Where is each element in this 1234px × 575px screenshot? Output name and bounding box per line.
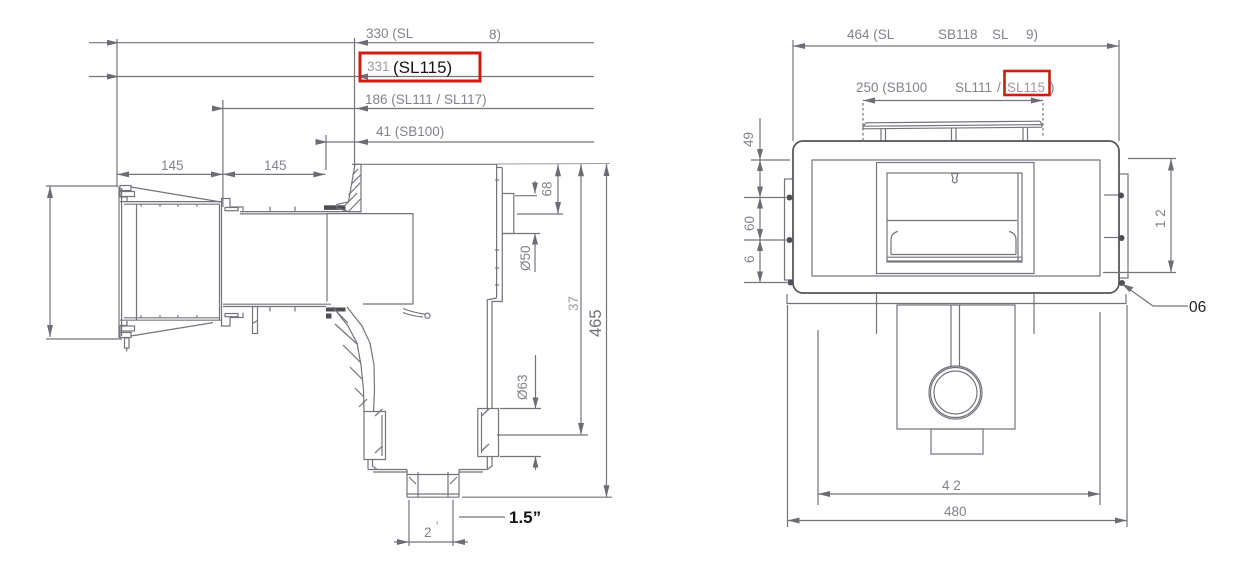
svg-text:60: 60	[742, 216, 757, 231]
svg-text:': '	[436, 519, 439, 534]
svg-text:06: 06	[1189, 299, 1206, 316]
svg-text:4 2: 4 2	[942, 478, 961, 493]
svg-text:SL111: SL111	[955, 80, 992, 95]
svg-text:145: 145	[264, 158, 287, 173]
svg-text:330 (SL: 330 (SL	[366, 26, 414, 41]
svg-text:145: 145	[161, 158, 184, 173]
svg-text:465: 465	[587, 309, 605, 337]
svg-text:SB118: SB118	[938, 27, 978, 42]
svg-text:8): 8)	[489, 27, 501, 42]
svg-text:41 (SB100): 41 (SB100)	[376, 124, 444, 139]
svg-text:250 (SB100: 250 (SB100	[856, 80, 927, 95]
svg-text:1.5”: 1.5”	[509, 508, 541, 527]
svg-text:Ø63: Ø63	[515, 374, 530, 400]
svg-text:SL: SL	[992, 27, 1009, 42]
svg-text:186 (SL111 / SL117): 186 (SL111 / SL117)	[365, 92, 487, 107]
svg-text:37: 37	[566, 296, 581, 311]
svg-text:1 2: 1 2	[1153, 209, 1168, 228]
svg-text:68: 68	[540, 181, 555, 196]
svg-text:/: /	[997, 80, 1001, 95]
svg-text:(SL115): (SL115)	[393, 58, 452, 77]
svg-text:Ø50: Ø50	[518, 245, 533, 271]
svg-text:SL115: SL115	[1007, 80, 1045, 95]
svg-text:464 (SL: 464 (SL	[847, 27, 895, 42]
svg-text:49: 49	[741, 132, 756, 147]
svg-text:2: 2	[424, 525, 432, 540]
svg-text:331: 331	[367, 59, 390, 74]
svg-text:6: 6	[742, 255, 757, 263]
svg-text:480: 480	[944, 504, 967, 519]
svg-text:9): 9)	[1026, 27, 1038, 42]
